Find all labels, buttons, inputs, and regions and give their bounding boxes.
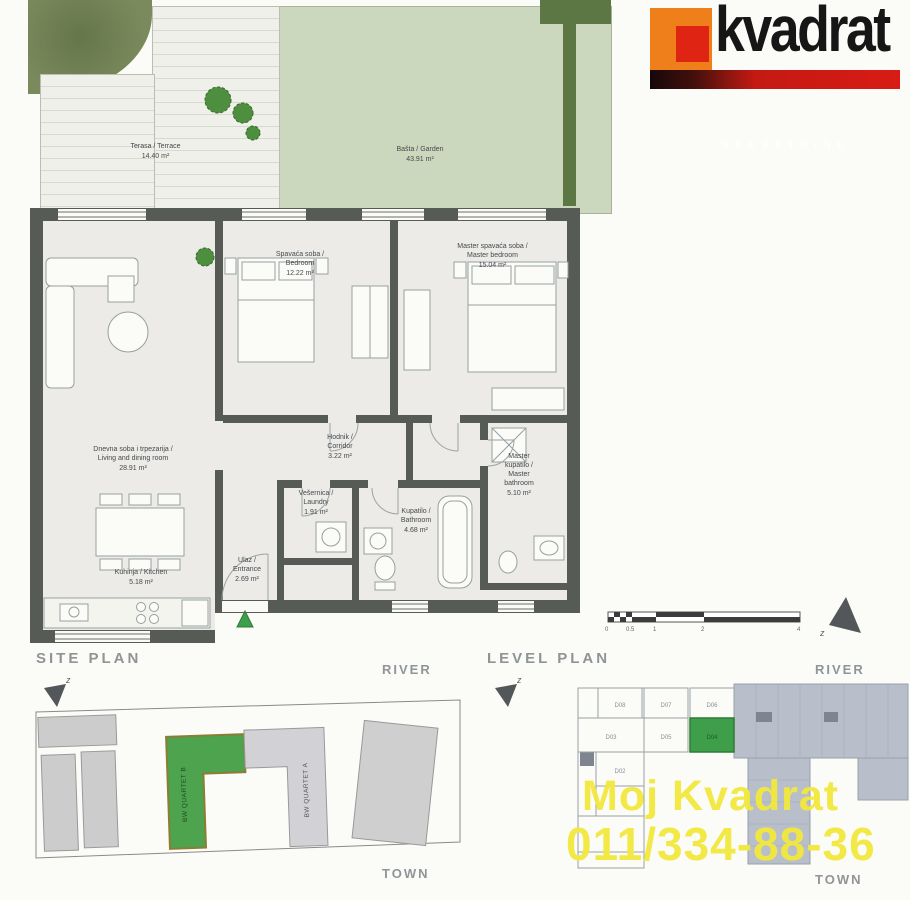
entrance-label: Ulaz / Entrance 2.69 m² xyxy=(216,556,278,584)
compass-letter: z xyxy=(65,675,71,685)
watermark-name: Moj Kvadrat xyxy=(582,772,839,821)
unit-label: D05 xyxy=(660,735,672,741)
site-plan-drawing: BW QUARTET B BW QUARTET A xyxy=(36,700,460,858)
level-plan-title: LEVEL PLAN xyxy=(487,650,610,667)
river-label-right: RIVER xyxy=(815,662,865,677)
terrace-label: Terasa / Terrace 14.40 m² xyxy=(98,142,213,161)
town-label-right: TOWN xyxy=(815,872,862,887)
scale-tick: 0 xyxy=(605,627,608,633)
bedroom-label: Spavaća soba / Bedroom 12.22 m² xyxy=(250,250,350,278)
entrance-marker-icon xyxy=(237,611,253,627)
laundry-label: Vešernica / Laundry 1.91 m² xyxy=(282,489,350,517)
kitchen-label: Kuhinja / Kitchen 5.18 m² xyxy=(85,568,197,587)
logo-red-bar: NEKRETNINE xyxy=(650,70,900,89)
floor-plan-page: z z z BW QUARTET B BW QUARTET A xyxy=(0,0,910,900)
bathroom-label: Kupatilo / Bathroom 4.68 m² xyxy=(380,507,452,535)
unit-label: D07 xyxy=(660,703,672,709)
agency-logo: NEKRETNINE kvadrat xyxy=(645,4,905,96)
river-label-left: RIVER xyxy=(382,662,432,677)
logo-brand-name: kvadrat xyxy=(715,0,889,66)
master-bathroom-label: Master kupatilo / Master bathroom 5.10 m… xyxy=(488,452,550,498)
unit-label: D06 xyxy=(706,703,718,709)
unit-label-highlighted: D04 xyxy=(706,735,718,741)
watermark-phone: 011/334-88-36 xyxy=(566,817,876,871)
compass-letter: z xyxy=(516,675,522,685)
scale-bar-graphic xyxy=(608,612,800,622)
compass-letter: z xyxy=(819,628,825,638)
living-room-label: Dnevna soba i trpezarija / Living and di… xyxy=(58,445,208,473)
logo-red-square-icon xyxy=(676,26,709,62)
scale-tick: 1 xyxy=(653,627,656,633)
scale-tick: 2 xyxy=(701,627,704,633)
scale-tick: 0.5 xyxy=(626,627,634,633)
building-a-shape xyxy=(244,727,328,848)
site-plan-title: SITE PLAN xyxy=(36,650,141,667)
unit-label: D03 xyxy=(605,735,617,741)
unit-label: D08 xyxy=(614,703,626,709)
building-b-shape xyxy=(166,734,248,849)
garden-label: Bašta / Garden 43.91 m² xyxy=(360,145,480,164)
master-bedroom-label: Master spavaća soba / Master bedroom 15.… xyxy=(425,242,560,270)
corridor-label: Hodnik / Corridor 3.22 m² xyxy=(305,433,375,461)
scale-tick: 4 xyxy=(797,627,800,633)
logo-tagline: NEKRETNINE xyxy=(722,140,851,150)
town-label-left: TOWN xyxy=(382,866,429,881)
logo-orange-square-icon xyxy=(650,8,712,70)
